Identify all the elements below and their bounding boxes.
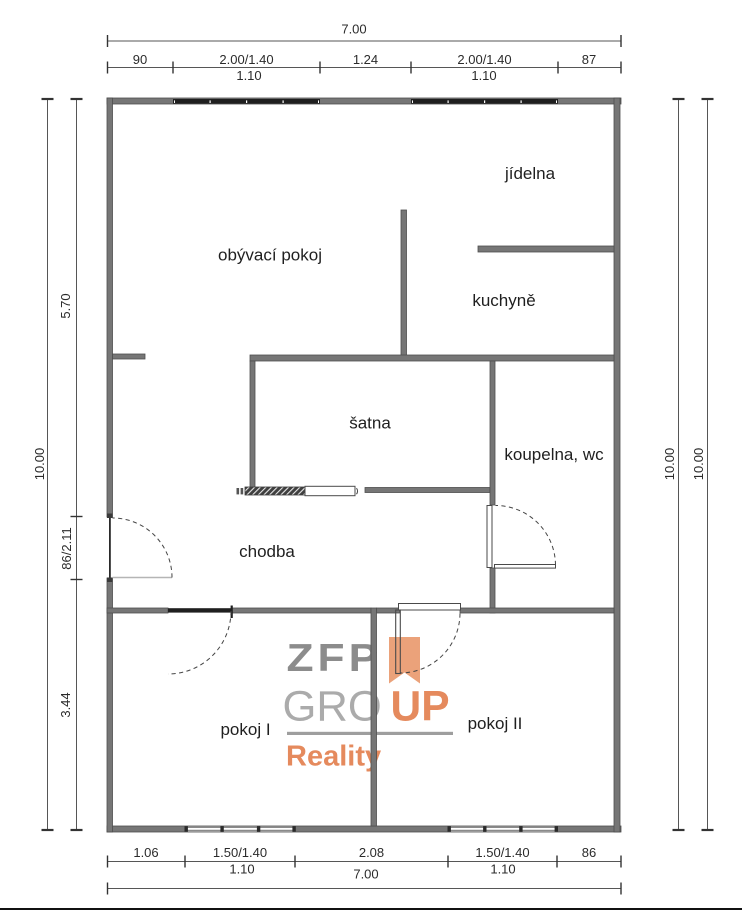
svg-text:1.06: 1.06 [133, 845, 158, 860]
svg-text:7.00: 7.00 [341, 22, 366, 37]
svg-text:chodba: chodba [239, 542, 295, 561]
svg-text:kuchyně: kuchyně [472, 291, 535, 310]
svg-text:86: 86 [582, 845, 596, 860]
svg-text:10.00: 10.00 [32, 448, 47, 481]
svg-text:2.08: 2.08 [359, 845, 384, 860]
svg-text:pokoj I: pokoj I [220, 720, 270, 739]
svg-text:jídelna: jídelna [504, 164, 556, 183]
svg-text:5.70: 5.70 [58, 293, 73, 318]
svg-text:2.00/1.40: 2.00/1.40 [219, 52, 273, 67]
svg-text:10.00: 10.00 [691, 448, 706, 481]
svg-text:Reality: Reality [286, 741, 381, 773]
svg-text:pokoj II: pokoj II [468, 714, 523, 733]
svg-text:šatna: šatna [349, 414, 391, 433]
svg-text:GRO: GRO [283, 683, 382, 730]
svg-text:1.10: 1.10 [490, 862, 515, 877]
svg-text:1.10: 1.10 [236, 68, 261, 83]
svg-text:7.00: 7.00 [353, 867, 378, 882]
svg-text:86/2.11: 86/2.11 [59, 527, 74, 569]
svg-text:koupelna, wc: koupelna, wc [504, 445, 604, 464]
svg-text:2.00/1.40: 2.00/1.40 [457, 52, 511, 67]
svg-text:obývací pokoj: obývací pokoj [218, 246, 322, 265]
svg-text:1.24: 1.24 [353, 52, 378, 67]
svg-text:1.10: 1.10 [229, 862, 254, 877]
svg-text:ZFP: ZFP [287, 636, 383, 680]
svg-text:1.50/1.40: 1.50/1.40 [213, 845, 267, 860]
svg-text:UP: UP [391, 684, 450, 731]
svg-text:90: 90 [133, 52, 147, 67]
svg-text:1.50/1.40: 1.50/1.40 [475, 845, 529, 860]
svg-text:10.00: 10.00 [662, 448, 677, 481]
svg-text:1.10: 1.10 [471, 68, 496, 83]
svg-text:3.44: 3.44 [58, 692, 73, 717]
svg-text:87: 87 [582, 52, 596, 67]
